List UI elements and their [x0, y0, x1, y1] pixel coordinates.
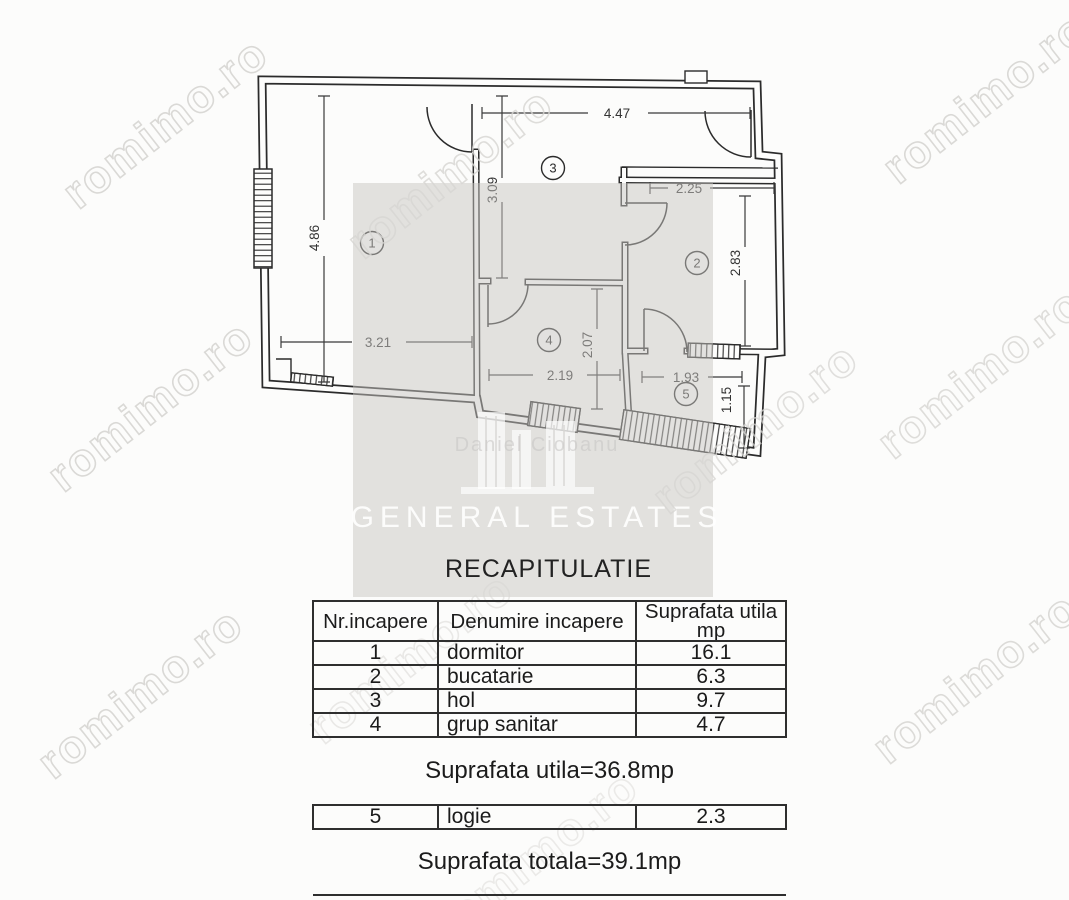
table-row: 2 bucatarie 6.3: [313, 665, 786, 689]
dim-label: 4.47: [604, 106, 630, 121]
romimo-watermark: romimo.ro: [37, 309, 262, 501]
subtotal-row: Suprafata utila=36.8mp: [313, 737, 786, 805]
agent-name-watermark: Daniel Ciobanu: [455, 434, 620, 456]
cell-room-name: logie: [438, 805, 636, 829]
romimo-watermark: romimo.ro: [27, 596, 252, 788]
watermark-overlay-box: [353, 183, 713, 597]
dim-label: 4.86: [307, 225, 322, 251]
door-entrance: [705, 110, 751, 157]
cell-room-area: 6.3: [636, 665, 786, 689]
kitchen-top-outer-line: [622, 167, 778, 168]
room-number: 3: [549, 161, 556, 176]
romimo-watermark: romimo.ro: [867, 276, 1069, 468]
cell-room-nr: 4: [313, 713, 438, 737]
romimo-watermark: romimo.ro: [872, 1, 1069, 193]
cell-room-nr: 1: [313, 641, 438, 665]
subtotal-text: Suprafata utila=36.8mp: [313, 737, 786, 805]
cell-room-area: 16.1: [636, 641, 786, 665]
total-text: Suprafata totala=39.1mp: [313, 829, 786, 895]
corner-pilaster: [276, 359, 291, 382]
cell-room-nr: 5: [313, 805, 438, 829]
cell-room-area: 2.3: [636, 805, 786, 829]
dim-label: 2.83: [728, 250, 743, 276]
cell-room-name: grup sanitar: [438, 713, 636, 737]
window-left-wall: [254, 169, 272, 268]
cell-room-name: bucatarie: [438, 665, 636, 689]
recap-title: RECAPITULATIE: [312, 555, 785, 584]
cell-room-name: hol: [438, 689, 636, 713]
total-row: Suprafata totala=39.1mp: [313, 829, 786, 895]
recap-header-row: Nr.incapere Denumire incapere Suprafata …: [313, 601, 786, 641]
cell-room-nr: 2: [313, 665, 438, 689]
header-suprafata: Suprafata utila mp: [636, 601, 786, 641]
cell-room-area: 4.7: [636, 713, 786, 737]
header-nr-incapere: Nr.incapere: [313, 601, 438, 641]
recap-table: Nr.incapere Denumire incapere Suprafata …: [312, 600, 787, 896]
scanned-floorplan-page: { "watermark": { "text": "romimo.ro", "b…: [0, 0, 1069, 900]
table-row: 4 grup sanitar 4.7: [313, 713, 786, 737]
romimo-watermark: romimo.ro: [52, 26, 277, 218]
dim-label: 1.15: [719, 387, 734, 413]
cell-room-nr: 3: [313, 689, 438, 713]
header-denumire: Denumire incapere: [438, 601, 636, 641]
table-row: 1 dormitor 16.1: [313, 641, 786, 665]
romimo-watermark: romimo.ro: [862, 581, 1069, 773]
table-row: 5 logie 2.3: [313, 805, 786, 829]
table-row: 3 hol 9.7: [313, 689, 786, 713]
cell-room-area: 9.7: [636, 689, 786, 713]
room-badge-3: 3: [542, 157, 565, 180]
top-wall-chimney-bump: [685, 71, 707, 83]
cell-room-name: dormitor: [438, 641, 636, 665]
header-suprafata-line2: mp: [637, 621, 785, 640]
